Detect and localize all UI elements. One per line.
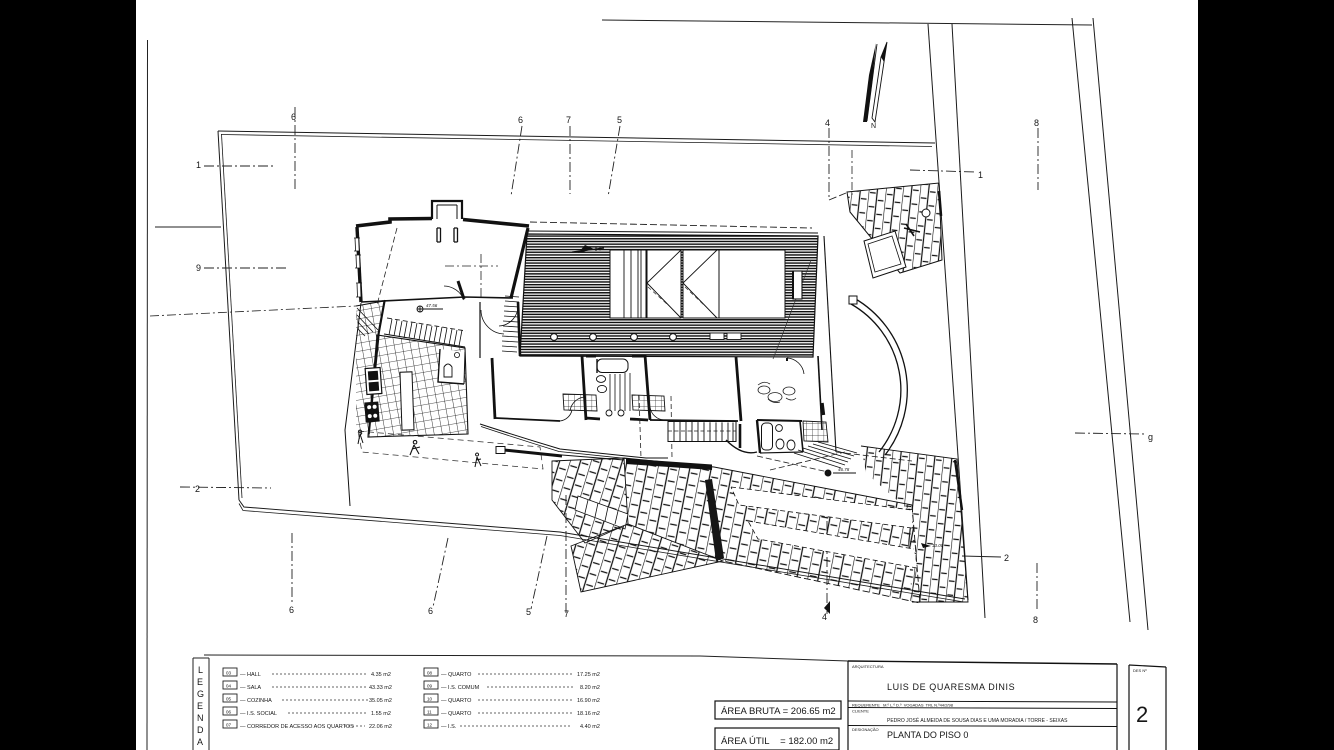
svg-text:12: 12 (427, 723, 433, 728)
svg-text:11: 11 (427, 710, 432, 715)
svg-text:D: D (197, 725, 204, 735)
svg-text:— I.S. SOCIAL: — I.S. SOCIAL (240, 711, 277, 717)
svg-text:ÁREA ÚTIL = 182.00 m2: ÁREA ÚTIL = 182.00 m2 (721, 736, 833, 747)
svg-text:05: 05 (226, 697, 232, 702)
svg-text:7: 7 (564, 609, 569, 619)
svg-text:2: 2 (1136, 702, 1148, 727)
svg-text:6: 6 (428, 606, 433, 616)
svg-text:E: E (197, 701, 203, 711)
svg-text:— QUARTO: — QUARTO (441, 698, 472, 704)
svg-text:6: 6 (518, 115, 523, 125)
svg-text:DES Nº: DES Nº (1133, 668, 1147, 673)
svg-text:43.33 m2: 43.33 m2 (369, 685, 392, 691)
svg-text:— I.S.: — I.S. (441, 724, 457, 730)
svg-text:LUIS DE QUARESMA DINIS: LUIS DE QUARESMA DINIS (887, 682, 1015, 692)
svg-text:PEDRO JOSÉ ALMEIDA DE SOUSA DI: PEDRO JOSÉ ALMEIDA DE SOUSA DIAS E UMA M… (887, 717, 1068, 724)
svg-text:— QUARTO: — QUARTO (441, 672, 472, 678)
svg-text:2: 2 (195, 484, 200, 494)
svg-text:CLIENTE: CLIENTE (852, 709, 869, 714)
svg-text:08: 08 (427, 671, 433, 676)
svg-text:03: 03 (226, 671, 232, 676)
svg-text:DESIGNAÇÃO: DESIGNAÇÃO (852, 727, 879, 732)
svg-text:— QUARTO: — QUARTO (441, 711, 472, 717)
svg-text:5: 5 (617, 115, 622, 125)
svg-text:1.55 m2: 1.55 m2 (371, 711, 391, 717)
svg-text:07: 07 (226, 723, 232, 728)
svg-text:PLANTA DO PISO 0: PLANTA DO PISO 0 (887, 730, 968, 740)
svg-text:— HALL: — HALL (240, 672, 261, 678)
svg-text:1: 1 (196, 160, 201, 170)
svg-text:4.40 m2: 4.40 m2 (580, 724, 600, 730)
svg-text:1: 1 (978, 170, 983, 180)
svg-text:N: N (871, 123, 876, 130)
svg-text:17.25 m2: 17.25 m2 (577, 672, 600, 678)
svg-text:L: L (198, 665, 203, 675)
svg-text:2: 2 (1004, 553, 1009, 563)
svg-text:N: N (197, 713, 204, 723)
svg-text:5: 5 (526, 607, 531, 617)
svg-text:47.56: 47.56 (426, 303, 438, 308)
svg-text:6: 6 (289, 605, 294, 615)
svg-text:G: G (197, 689, 204, 699)
svg-text:— I.S. COMUM: — I.S. COMUM (441, 685, 480, 691)
svg-text:35.05 m2: 35.05 m2 (369, 698, 392, 704)
svg-text:16.90 m2: 16.90 m2 (577, 698, 600, 704)
svg-text:22.06 m2: 22.06 m2 (369, 724, 392, 730)
svg-text:A: A (197, 737, 203, 747)
svg-text:ARQUITECTURA: ARQUITECTURA (852, 664, 884, 669)
svg-text:8.20 m2: 8.20 m2 (580, 685, 600, 691)
svg-text:7: 7 (566, 115, 571, 125)
svg-text:E: E (197, 677, 203, 687)
svg-text:10: 10 (427, 697, 433, 702)
svg-text:REQUERENTE M.º L.º D.º VOGA: REQUERENTE M.º L.º D.º VOGADAS TRL N.º44… (852, 703, 954, 708)
svg-text:18.16 m2: 18.16 m2 (577, 711, 600, 717)
svg-text:— SALA: — SALA (240, 685, 261, 691)
svg-text:06: 06 (226, 710, 232, 715)
svg-text:4.35 m2: 4.35 m2 (371, 672, 391, 678)
svg-text:ÁREA BRUTA = 206.65 m2: ÁREA BRUTA = 206.65 m2 (721, 706, 836, 717)
svg-text:8: 8 (1034, 118, 1039, 128)
svg-text:— COZINHA: — COZINHA (240, 698, 272, 704)
svg-text:g: g (1148, 432, 1153, 442)
svg-text:04: 04 (226, 684, 232, 689)
svg-text:8: 8 (1033, 615, 1038, 625)
svg-text:9: 9 (196, 263, 201, 273)
svg-text:4: 4 (825, 118, 830, 128)
svg-text:— CORREDOR DE ACESSO AOS QUART: — CORREDOR DE ACESSO AOS QUARTOS (240, 724, 354, 730)
svg-text:4: 4 (822, 612, 827, 622)
svg-text:09: 09 (427, 684, 433, 689)
svg-text:13.00: 13.00 (932, 543, 944, 548)
